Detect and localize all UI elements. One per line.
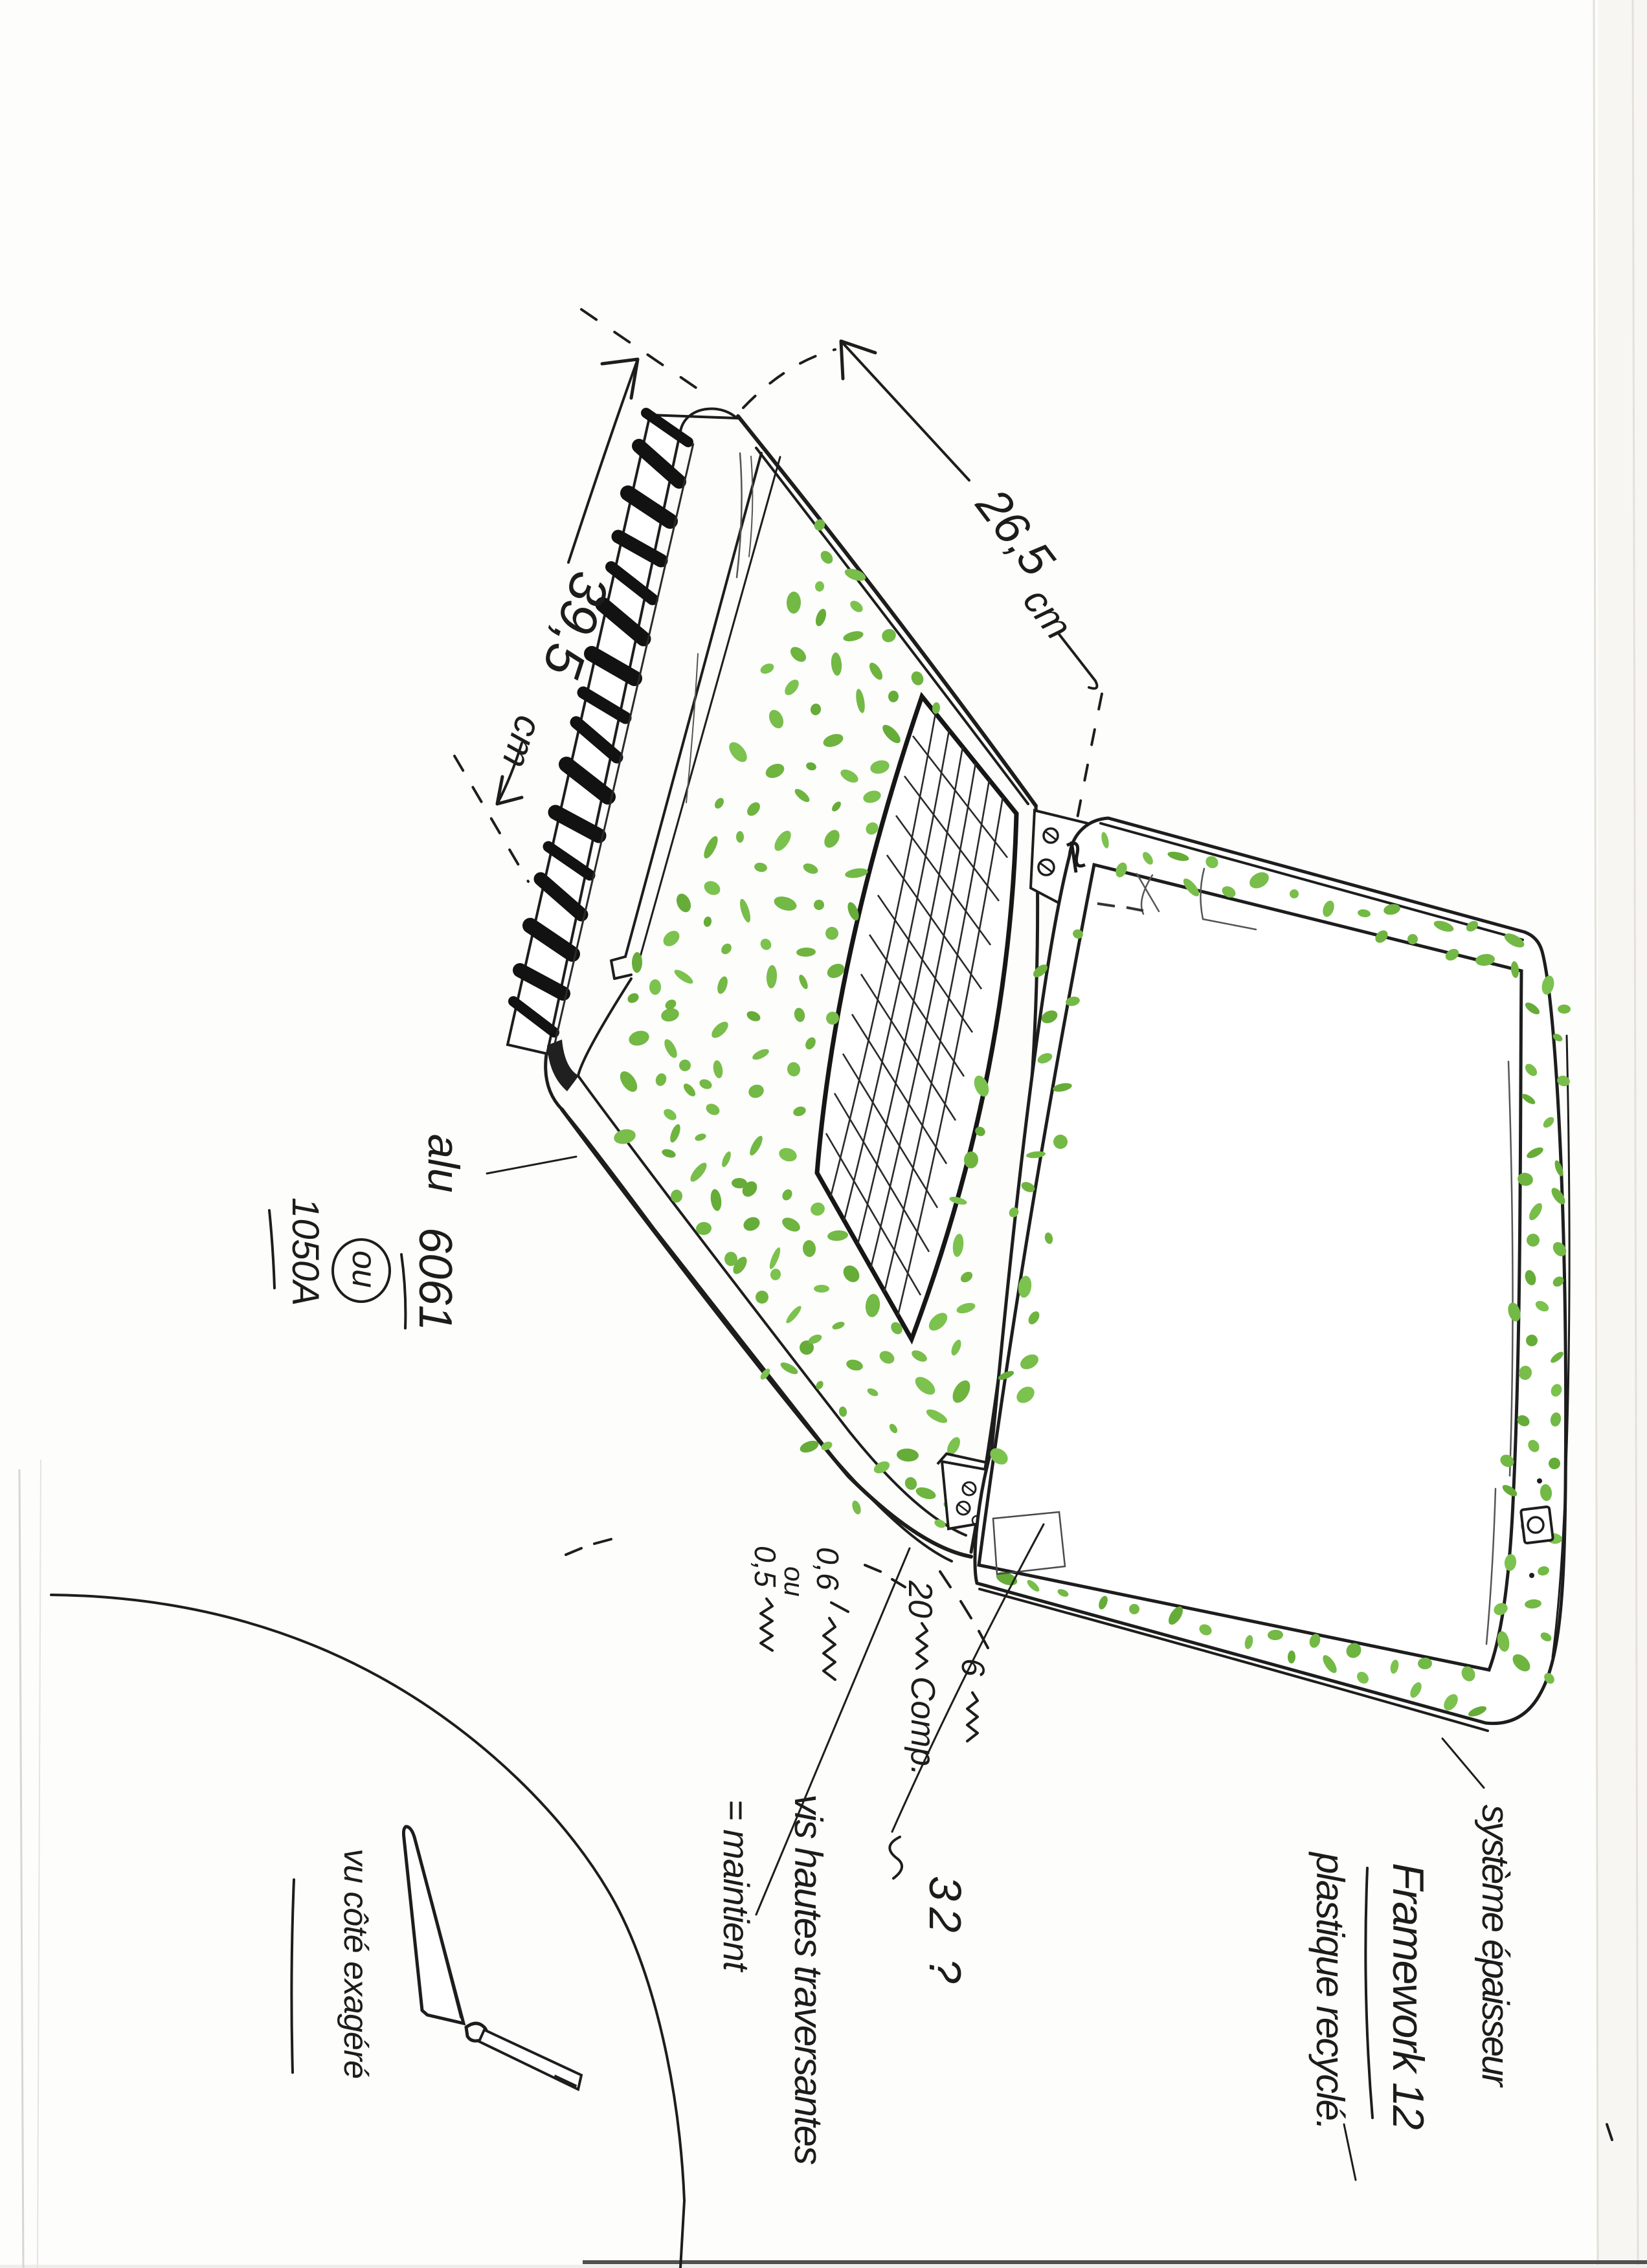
svg-text:= maintient: = maintient [716,1799,757,1973]
svg-text:système épaisseur: système épaisseur [1474,1805,1516,2088]
svg-text:plastique recyclé.: plastique recyclé. [1308,1851,1352,2129]
svg-text:6061: 6061 [409,1227,461,1331]
svg-text:32 ?: 32 ? [920,1876,970,1990]
svg-text:1050A: 1050A [284,1197,326,1306]
svg-text:0,5: 0,5 [748,1546,782,1587]
svg-text:6: 6 [955,1658,991,1676]
svg-text:vu côté exagéré: vu côté exagéré [337,1849,374,2078]
svg-text:20: 20 [901,1580,939,1618]
svg-text:ou: ou [345,1251,383,1288]
svg-text:vis hautes traversantes: vis hautes traversantes [787,1794,830,2164]
svg-text:Comp.: Comp. [904,1676,941,1775]
svg-text:0,6: 0,6 [810,1547,844,1590]
svg-text:Framework 12: Framework 12 [1384,1863,1433,2129]
svg-text:ou: ou [779,1566,809,1597]
svg-text:alu: alu [419,1134,468,1193]
